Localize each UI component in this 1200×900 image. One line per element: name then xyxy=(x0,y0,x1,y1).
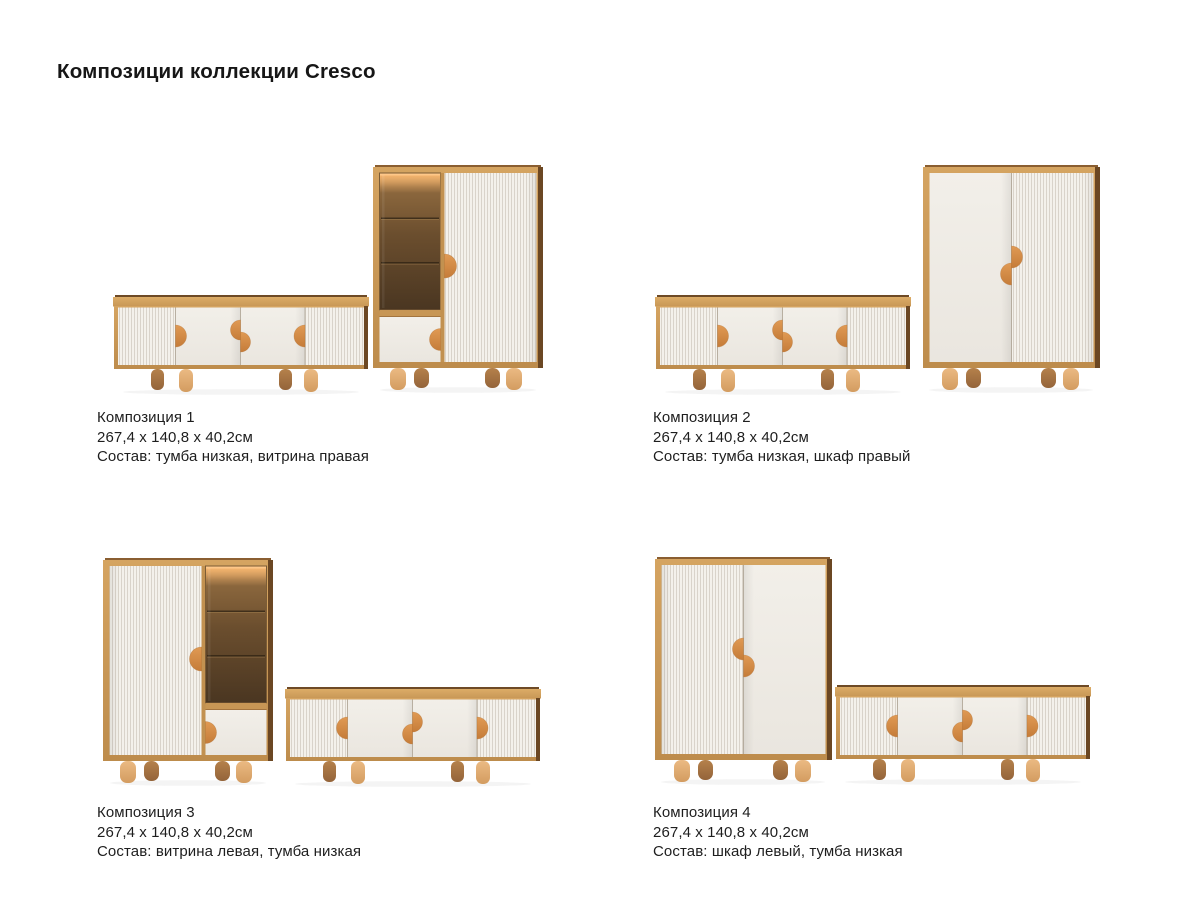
cupboard-right-illustration xyxy=(923,165,1100,393)
composition-contents: Состав: тумба низкая, шкаф правый xyxy=(653,447,1073,467)
composition-name: Композиция 2 xyxy=(653,408,1073,428)
composition-dimensions: 267,4 x 140,8 x 40,2см xyxy=(97,428,517,448)
composition-name: Композиция 1 xyxy=(97,408,517,428)
low-sideboard-illustration xyxy=(835,685,1091,785)
composition-card-3: Композиция 3 267,4 x 140,8 x 40,2см Сост… xyxy=(95,545,555,875)
composition-dimensions: 267,4 x 140,8 x 40,2см xyxy=(653,428,1073,448)
low-sideboard-illustration xyxy=(113,295,369,395)
composition-dimensions: 267,4 x 140,8 x 40,2см xyxy=(97,823,517,843)
composition-card-2: Композиция 2 267,4 x 140,8 x 40,2см Сост… xyxy=(650,150,1110,480)
composition-contents: Состав: шкаф левый, тумба низкая xyxy=(653,842,1073,862)
composition-name: Композиция 4 xyxy=(653,803,1073,823)
composition-contents: Состав: тумба низкая, витрина правая xyxy=(97,447,517,467)
display-cabinet-left-illustration xyxy=(103,558,273,786)
composition-card-1: Композиция 1 267,4 x 140,8 x 40,2см Сост… xyxy=(95,150,555,480)
page-title: Композиции коллекции Cresco xyxy=(57,60,376,84)
low-sideboard-illustration xyxy=(285,687,541,787)
composition-dimensions: 267,4 x 140,8 x 40,2см xyxy=(653,823,1073,843)
composition-name: Композиция 3 xyxy=(97,803,517,823)
composition-card-4: Композиция 4 267,4 x 140,8 x 40,2см Сост… xyxy=(640,545,1100,875)
display-cabinet-right-illustration xyxy=(373,165,543,393)
cupboard-left-illustration xyxy=(655,557,832,785)
composition-contents: Состав: витрина левая, тумба низкая xyxy=(97,842,517,862)
low-sideboard-illustration xyxy=(655,295,911,395)
